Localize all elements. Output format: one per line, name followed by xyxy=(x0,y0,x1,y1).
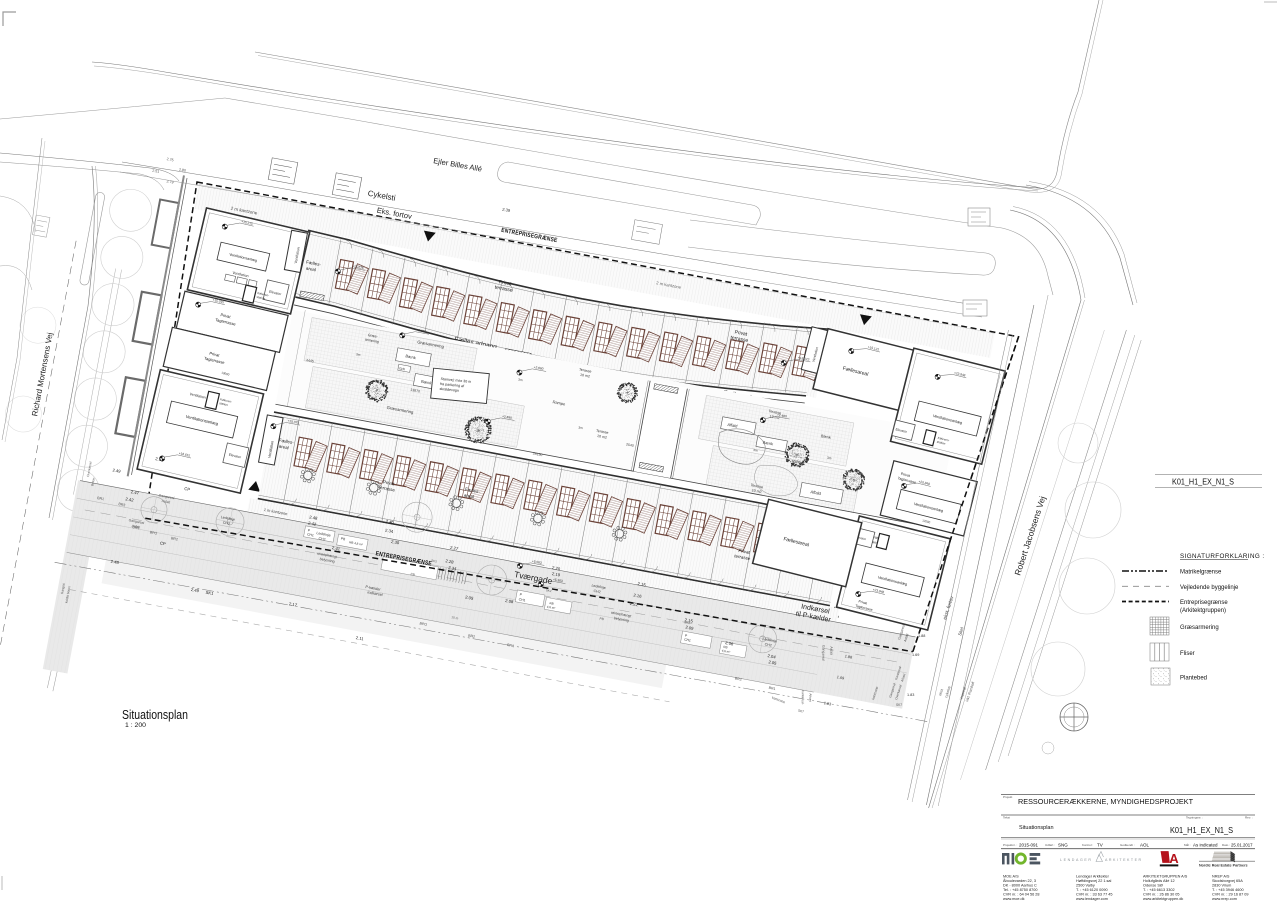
svg-text:Dato :: Dato : xyxy=(1222,843,1230,847)
svg-text:Udført :: Udført : xyxy=(1045,843,1055,847)
svg-text:A: A xyxy=(1169,851,1179,866)
svg-text:CVR nr. : 29 16 87 09: CVR nr. : 29 16 87 09 xyxy=(1212,893,1249,897)
svg-text:1.69: 1.69 xyxy=(912,653,919,657)
svg-text:PB: PB xyxy=(410,572,415,577)
svg-text:NREP A/S: NREP A/S xyxy=(1212,875,1230,879)
svg-text:RESSOURCERÆKKERNE, MYNDIGHEDSP: RESSOURCERÆKKERNE, MYNDIGHEDSPROJEKT xyxy=(1018,797,1193,806)
svg-text:Godkendt :: Godkendt : xyxy=(1120,843,1135,847)
svg-text:As indicated: As indicated xyxy=(1193,843,1218,848)
svg-text:(Arkitektgruppen): (Arkitektgruppen) xyxy=(1180,608,1226,614)
svg-text:K01_H1_EX_N1_S: K01_H1_EX_N1_S xyxy=(1172,478,1234,487)
svg-text:Afsæt: Afsæt xyxy=(808,693,812,701)
svg-text:Situationsplan: Situationsplan xyxy=(122,708,188,722)
svg-text:Entreprisegrænse: Entreprisegrænse xyxy=(1180,600,1228,606)
svg-text:Kontrol :: Kontrol : xyxy=(1082,843,1093,847)
svg-text:1.88: 1.88 xyxy=(918,634,925,638)
svg-text:Odense SØ: Odense SØ xyxy=(1143,884,1163,888)
svg-text:1 : 200: 1 : 200 xyxy=(125,722,146,729)
svg-text:ARKITEKTGRUPPEN A/S: ARKITEKTGRUPPEN A/S xyxy=(1143,875,1188,879)
svg-text:DK - 8000 Aarhus C: DK - 8000 Aarhus C xyxy=(1003,884,1037,888)
svg-text:SNG: SNG xyxy=(1058,843,1068,848)
svg-text:Hollufgårds Allé 12: Hollufgårds Allé 12 xyxy=(1143,879,1175,883)
svg-text:2830 Virum: 2830 Virum xyxy=(1212,884,1231,888)
svg-text:Asfalt: Asfalt xyxy=(829,646,833,655)
svg-text:Gangareal: Gangareal xyxy=(821,645,825,661)
svg-text:Åboulevarden 22, 3: Åboulevarden 22, 3 xyxy=(1003,878,1036,883)
svg-text:Skodsborgvej 65A: Skodsborgvej 65A xyxy=(1212,879,1243,883)
svg-text:MOE A/S: MOE A/S xyxy=(1003,875,1019,879)
svg-text:Projekt: Projekt xyxy=(1003,795,1013,799)
svg-text:2015-091: 2015-091 xyxy=(1019,843,1039,848)
svg-text:Kantareal-: Kantareal- xyxy=(801,690,805,705)
svg-text:2500 Valby: 2500 Valby xyxy=(1076,884,1095,888)
svg-text:CVR nr. : 26 86 30 05: CVR nr. : 26 86 30 05 xyxy=(1143,893,1180,897)
svg-text:Tegningsnr. :: Tegningsnr. : xyxy=(1186,816,1203,820)
svg-text:SIGNATURFORKLARING :: SIGNATURFORKLARING : xyxy=(1180,553,1265,560)
svg-text:ARKITEKTER: ARKITEKTER xyxy=(1105,858,1143,862)
svg-text:Græsarmering: Græsarmering xyxy=(1180,625,1219,631)
svg-text:TV: TV xyxy=(1097,843,1103,848)
svg-text:CVR nr. : 64 04 56 28: CVR nr. : 64 04 56 28 xyxy=(1003,893,1040,897)
svg-text:Høffdingsvej 22 1.sal: Høffdingsvej 22 1.sal xyxy=(1076,879,1112,883)
svg-text:Nordic Real Estate Partners: Nordic Real Estate Partners xyxy=(1199,863,1248,867)
svg-text:www.moe.dk: www.moe.dk xyxy=(1003,897,1025,901)
svg-text:Tekst: Tekst xyxy=(1003,816,1010,820)
svg-text:Vejledende byggelinje: Vejledende byggelinje xyxy=(1180,585,1239,591)
svg-text:T. : +45 6120 0090: T. : +45 6120 0090 xyxy=(1076,888,1108,892)
svg-text:AOL: AOL xyxy=(1140,843,1150,848)
svg-text:LENDAGER: LENDAGER xyxy=(1060,858,1093,862)
svg-text:Matrikelgrænse: Matrikelgrænse xyxy=(1180,570,1222,576)
svg-text:www.lendager.com: www.lendager.com xyxy=(1076,897,1108,901)
svg-text:K01_H1_EX_N1_S: K01_H1_EX_N1_S xyxy=(1170,825,1233,835)
svg-text:Tel. : +45 8750 8700: Tel. : +45 8750 8700 xyxy=(1003,888,1038,892)
svg-text:www.nrep.com: www.nrep.com xyxy=(1212,897,1237,901)
svg-text:SK7: SK7 xyxy=(896,703,902,707)
svg-text:CVR nr. : 33 63 77 45: CVR nr. : 33 63 77 45 xyxy=(1076,893,1113,897)
svg-text:25.01.2017: 25.01.2017 xyxy=(1231,843,1253,848)
svg-text:Fliser: Fliser xyxy=(1180,651,1195,657)
svg-text:T. : +45 6613 3302: T. : +45 6613 3302 xyxy=(1143,888,1175,892)
svg-text:PB: PB xyxy=(599,617,604,622)
svg-text:www.arkitektgruppen.dk: www.arkitektgruppen.dk xyxy=(1143,897,1183,901)
svg-text:Situationsplan: Situationsplan xyxy=(1019,825,1054,831)
svg-text:1.83: 1.83 xyxy=(907,693,914,697)
svg-text:Mål :: Mål : xyxy=(1184,843,1191,847)
svg-text:Plantebed: Plantebed xyxy=(1180,676,1207,682)
svg-text:Projektnr. :: Projektnr. : xyxy=(1003,843,1018,847)
svg-text:Lendager Arkitekter: Lendager Arkitekter xyxy=(1076,875,1110,879)
svg-text:Rev. :: Rev. : xyxy=(1245,816,1253,820)
svg-text:T. : +45 3946 4600: T. : +45 3946 4600 xyxy=(1212,888,1244,892)
